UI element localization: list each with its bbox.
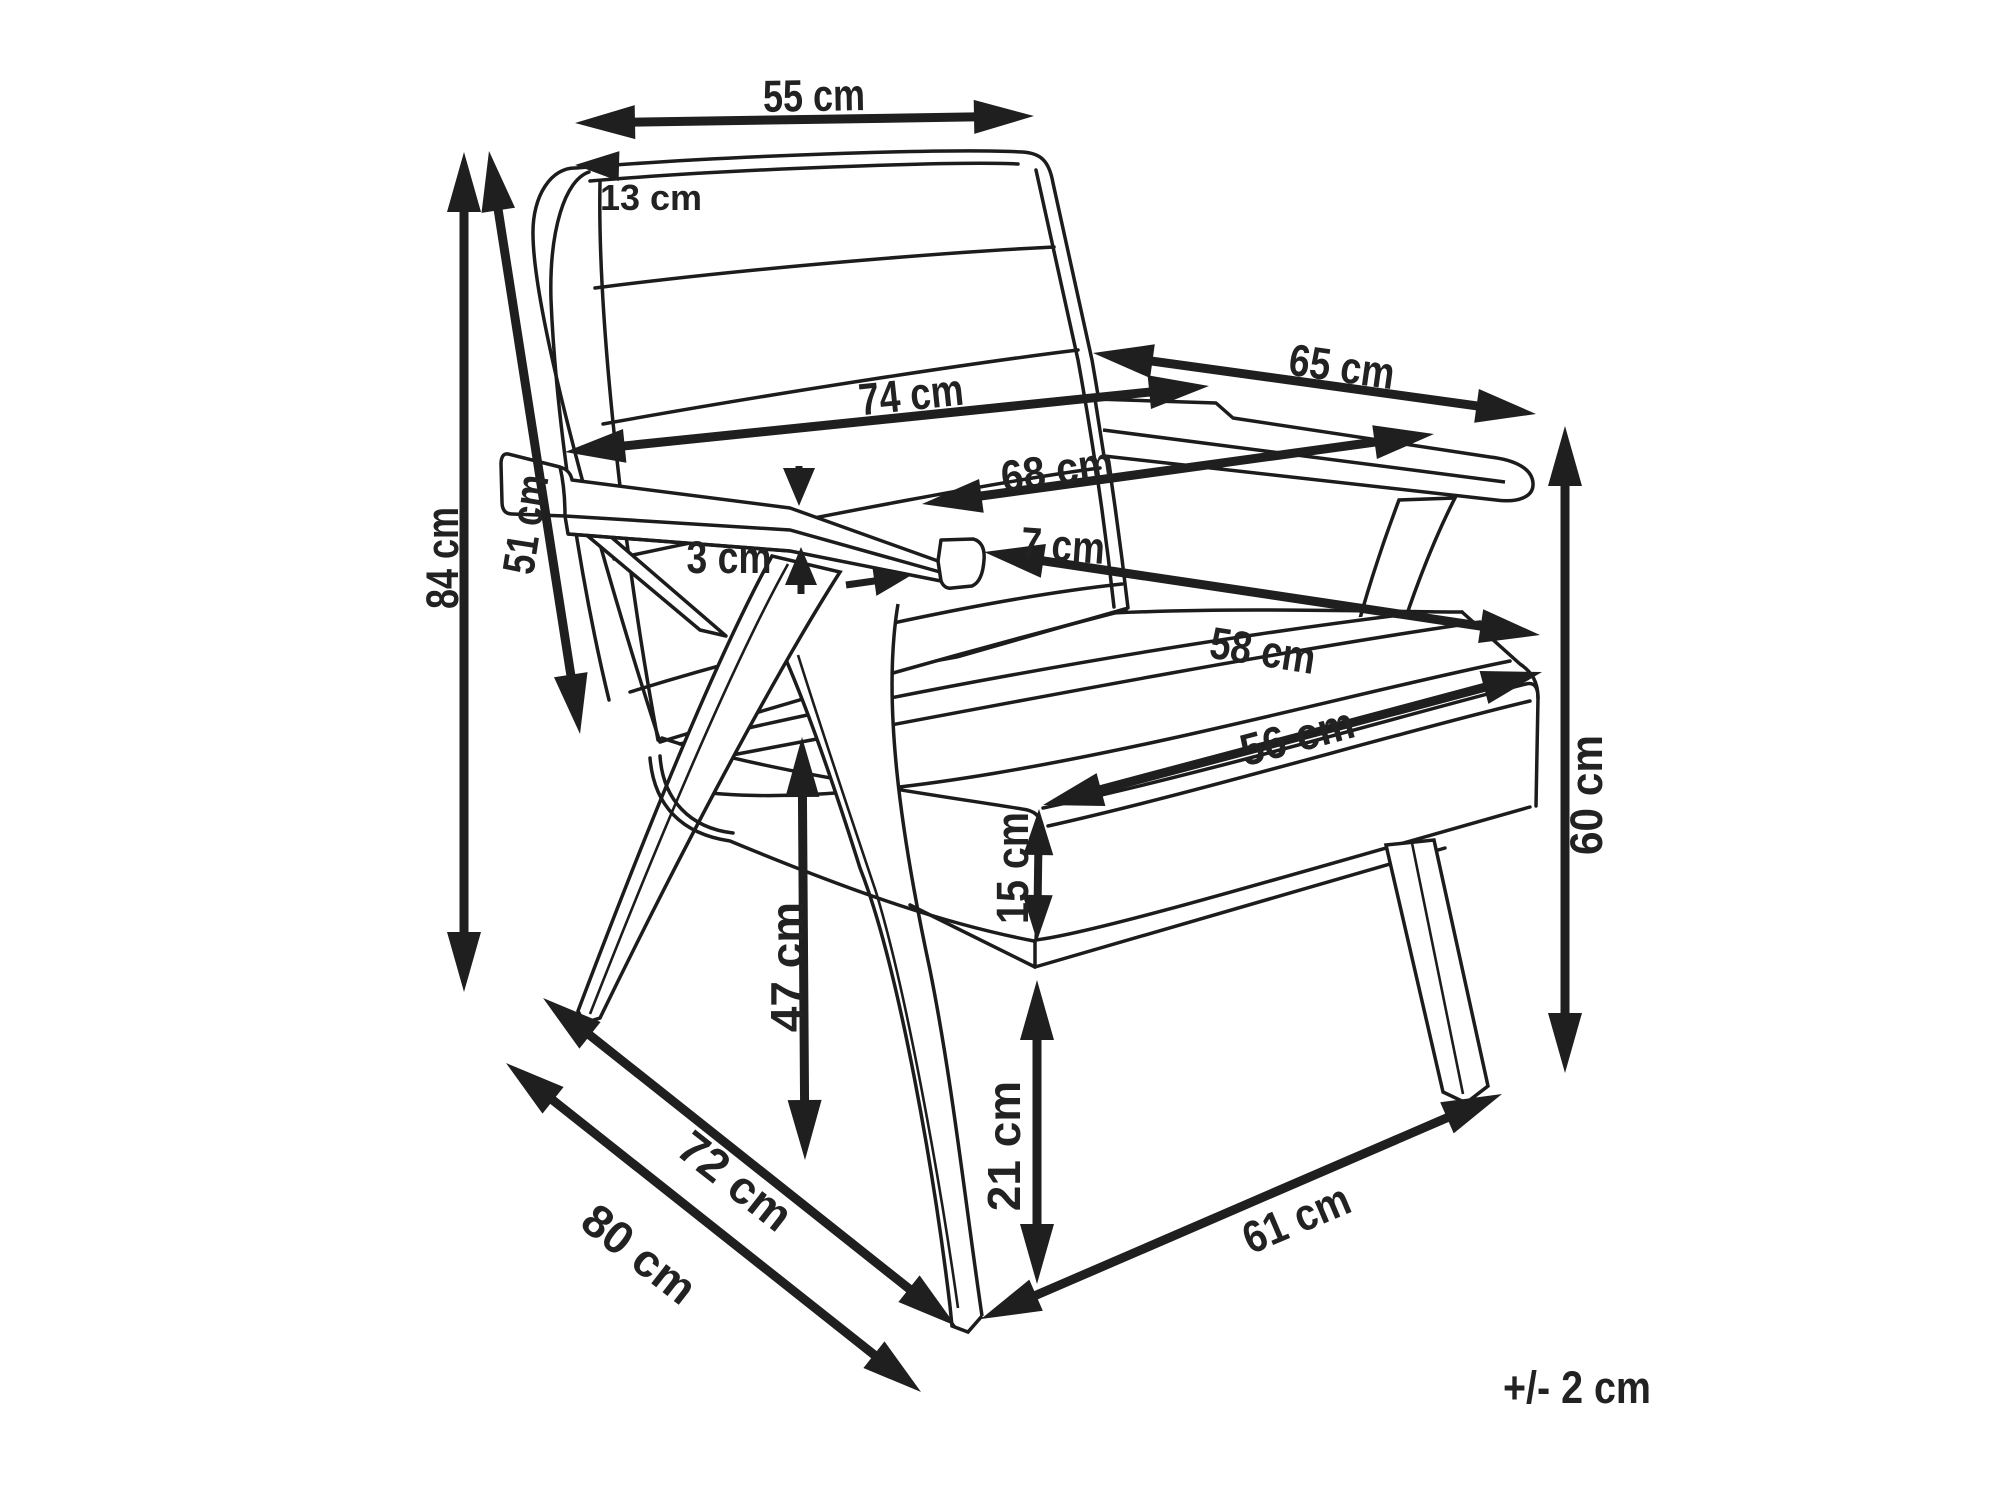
svg-text:3 cm: 3 cm	[687, 532, 772, 583]
svg-text:15 cm: 15 cm	[987, 812, 1038, 924]
svg-text:13 cm: 13 cm	[600, 177, 702, 218]
svg-text:+/- 2 cm: +/- 2 cm	[1503, 1362, 1651, 1413]
svg-text:84 cm: 84 cm	[417, 507, 468, 609]
svg-text:47 cm: 47 cm	[761, 902, 813, 1032]
svg-text:74 cm: 74 cm	[856, 364, 966, 426]
svg-text:55 cm: 55 cm	[763, 69, 866, 122]
svg-text:21 cm: 21 cm	[978, 1081, 1030, 1211]
svg-text:7 cm: 7 cm	[1019, 517, 1106, 574]
svg-text:60 cm: 60 cm	[1561, 735, 1612, 855]
